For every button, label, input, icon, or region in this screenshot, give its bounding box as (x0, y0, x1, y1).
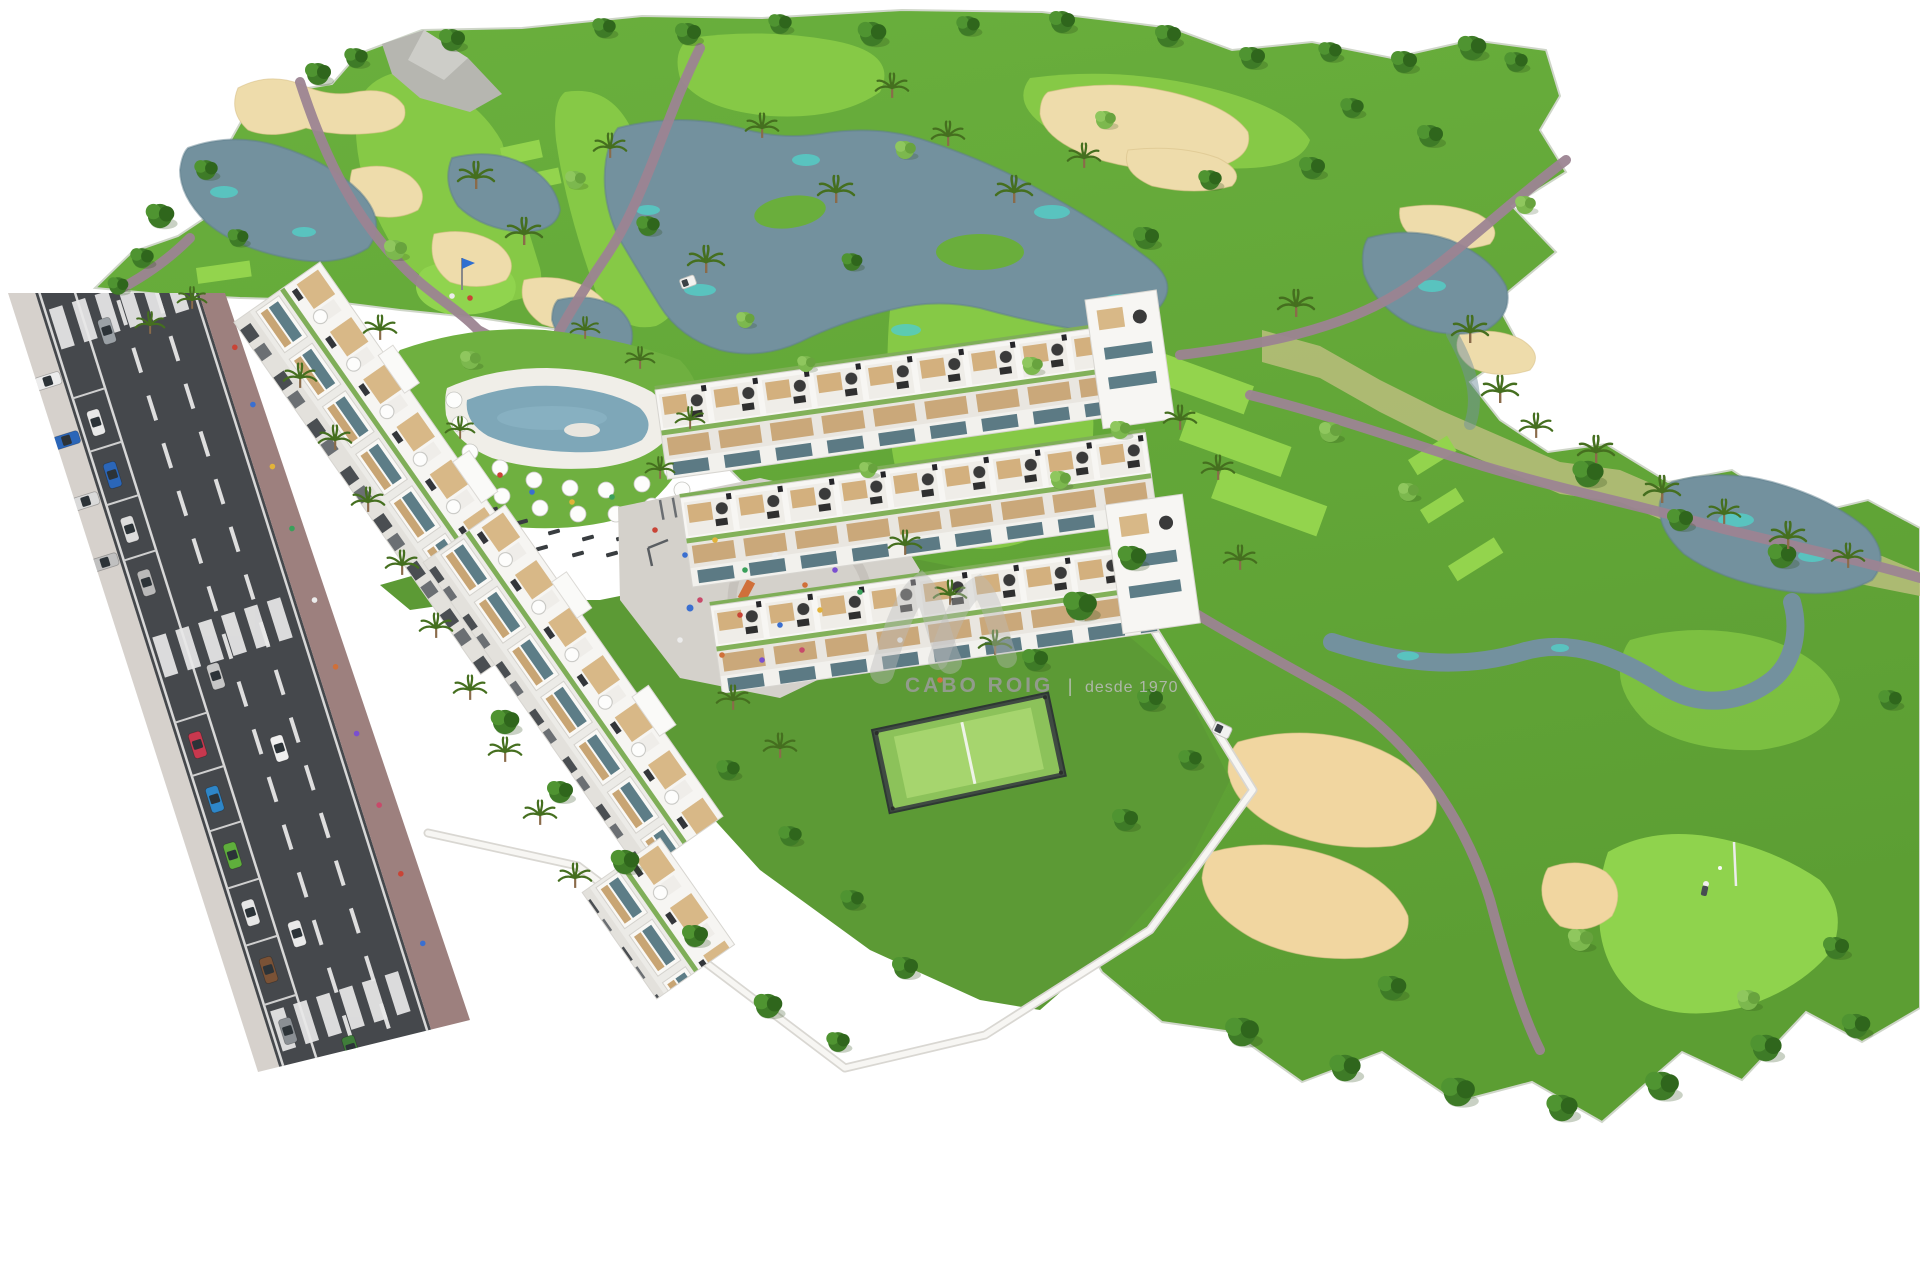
pool-islet (564, 423, 600, 437)
person (497, 472, 503, 478)
watermark-brand: CABO ROIG (905, 674, 1053, 697)
aerial-render-canvas: CABO ROIG | desde 1970 (0, 0, 1920, 1280)
person (777, 622, 783, 628)
parasol (562, 480, 578, 496)
palm-tree-icon (1520, 414, 1552, 438)
apartment-tower-south (582, 838, 734, 999)
palm-tree-icon (454, 676, 486, 700)
parasol (570, 506, 586, 522)
person (832, 567, 838, 573)
person (719, 652, 725, 658)
palm-tree-icon (524, 801, 556, 825)
person (742, 567, 748, 573)
person (737, 612, 743, 618)
palm-tree-icon (1482, 376, 1518, 403)
person (682, 552, 688, 558)
person (857, 589, 863, 595)
person (609, 494, 615, 500)
parasol (526, 472, 542, 488)
tree-icon (305, 63, 334, 86)
tree-icon (1645, 1072, 1683, 1102)
person (817, 607, 823, 613)
scene-svg: CABO ROIG | desde 1970 (0, 0, 1920, 1280)
palm-tree-icon (489, 738, 521, 762)
person (569, 499, 575, 505)
sun-lounger (536, 545, 549, 552)
parasol (634, 476, 650, 492)
tree-icon (754, 994, 786, 1019)
tree-icon (826, 1032, 852, 1053)
moving-car (423, 1095, 443, 1124)
person (652, 527, 658, 533)
tree-icon (491, 710, 523, 735)
sun-lounger (582, 535, 595, 542)
person (799, 647, 805, 653)
person (759, 657, 765, 663)
person (677, 637, 683, 643)
person (697, 597, 703, 603)
sun-lounger (572, 551, 585, 558)
person (529, 489, 535, 495)
watermark-separator: | (1068, 676, 1073, 696)
watermark-tagline: desde 1970 (1085, 679, 1179, 696)
person (802, 582, 808, 588)
person (712, 537, 718, 543)
tree-icon (547, 781, 576, 804)
sun-lounger (548, 529, 561, 536)
tree-icon (146, 204, 178, 229)
parasol (532, 500, 548, 516)
person (772, 552, 778, 558)
parasol (446, 392, 462, 408)
sun-lounger (606, 551, 619, 558)
